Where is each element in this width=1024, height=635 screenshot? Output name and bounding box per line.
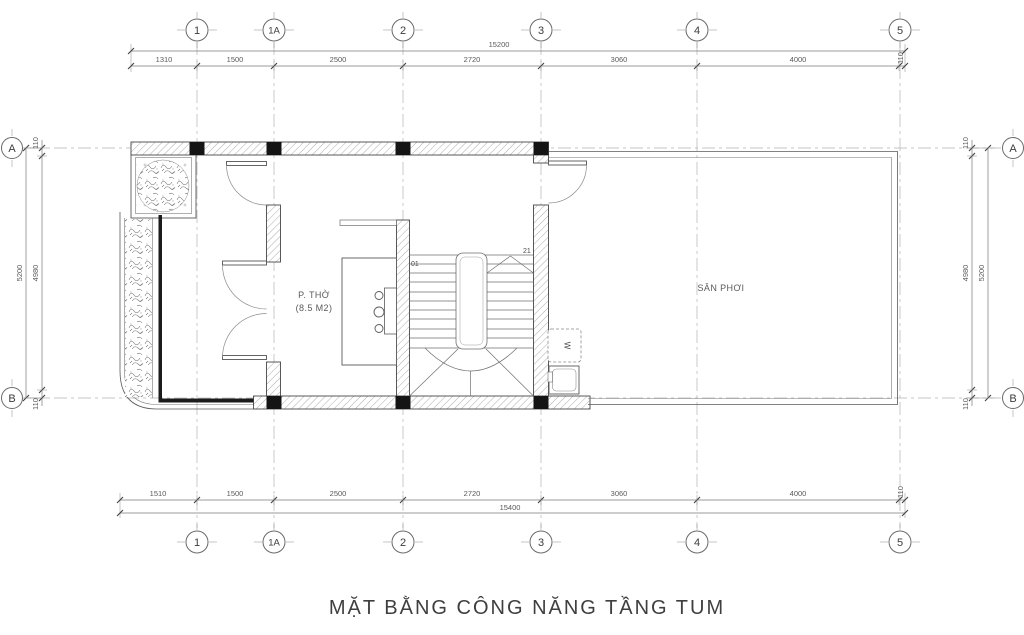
railing (159, 215, 254, 403)
grid-bubble-b-left: B (8, 393, 15, 405)
dimension-bottom: 1510 1500 2500 2720 3060 4000 110 15400 (117, 486, 908, 518)
drawing-title: MẶT BẰNG CÔNG NĂNG TẦNG TUM (329, 595, 725, 619)
dimension-top: 15200 1310 1500 2500 2720 3060 4000 110 (128, 40, 908, 72)
dim-bottom-seg-1: 1500 (227, 489, 244, 498)
dim-bottom-seg-0: 1510 (150, 489, 167, 498)
grid-bubble-1-bottom: 1 (194, 537, 200, 549)
dim-right-110-bottom: 110 (961, 398, 970, 410)
grid-bubbles-right: A B (994, 129, 1024, 417)
dim-bottom-seg-5: 4000 (790, 489, 807, 498)
grid-bubble-4-top: 4 (694, 25, 700, 37)
grid-bubble-b-right: B (1009, 393, 1016, 405)
door-drying-yard (549, 161, 587, 203)
door-double-1a (223, 261, 267, 360)
dimension-right: 4980 5200 110 110 (961, 137, 993, 410)
altar (340, 220, 397, 365)
dim-top-seg-2: 2500 (330, 55, 347, 64)
dim-right-inner: 4980 (961, 265, 970, 282)
dim-left-inner: 4980 (31, 265, 40, 282)
laundry-sink (548, 366, 579, 394)
tree-symbol (137, 160, 189, 212)
planter-strip (120, 212, 254, 409)
washing-machine: W (548, 329, 581, 362)
floor-plan-canvas: 15200 1310 1500 2500 2720 3060 4000 110 … (0, 0, 1024, 635)
dim-right-outer: 5200 (977, 265, 986, 282)
dim-right-110-top: 110 (961, 137, 970, 149)
dimension-left: 5200 4980 110 110 (15, 137, 47, 410)
grid-bubble-a-right: A (1009, 143, 1017, 155)
grid-bubble-3-bottom: 3 (538, 537, 544, 549)
dim-top-seg-6: 110 (896, 52, 905, 64)
grid-lines (30, 42, 995, 528)
grid-bubbles-top: 1 1A 2 3 4 5 (177, 12, 920, 48)
dim-top-total: 15200 (489, 40, 510, 49)
grid-bubble-5-top: 5 (897, 25, 903, 37)
grid-bubble-5-bottom: 5 (897, 537, 903, 549)
grid-bubble-4-bottom: 4 (694, 537, 700, 549)
staircase: 01 21 (410, 248, 534, 396)
grid-bubble-2-bottom: 2 (400, 537, 406, 549)
worship-room-area: (8.5 M2) (296, 303, 333, 313)
dim-bottom-seg-4: 3060 (611, 489, 628, 498)
grid-bubble-2-top: 2 (400, 25, 406, 37)
stair-well (456, 253, 487, 349)
door-single-1a (227, 162, 267, 206)
dim-top-seg-4: 3060 (611, 55, 628, 64)
dim-top-seg-0: 1310 (156, 55, 173, 64)
drying-yard-parapet (549, 152, 898, 405)
dim-top-seg-1: 1500 (227, 55, 244, 64)
grid-bubble-1a-bottom: 1A (268, 538, 280, 549)
grid-bubble-1-top: 1 (194, 25, 200, 37)
grid-bubble-a-left: A (8, 143, 16, 155)
dim-bottom-seg-3: 2720 (464, 489, 481, 498)
worship-room-label: P. THỜ (298, 290, 330, 300)
dim-bottom-total: 15400 (500, 503, 521, 512)
washer-symbol: W (563, 342, 572, 350)
grid-bubbles-bottom: 1 1A 2 3 4 5 (177, 524, 920, 553)
dim-bottom-seg-2: 2500 (330, 489, 347, 498)
drying-yard-label: SÂN PHƠI (698, 283, 745, 293)
planter-box (131, 153, 196, 218)
stair-number-end: 21 (523, 248, 531, 255)
dim-bottom-seg-6: 110 (896, 486, 905, 498)
dim-top-seg-3: 2720 (464, 55, 481, 64)
dim-top-seg-5: 4000 (790, 55, 807, 64)
dim-left-110-bottom: 110 (31, 398, 40, 410)
grid-bubble-3-top: 3 (538, 25, 544, 37)
dim-left-outer: 5200 (15, 265, 24, 282)
stair-number-start: 01 (411, 261, 419, 268)
dim-left-110-top: 110 (31, 137, 40, 149)
grid-bubble-1a-top: 1A (268, 26, 280, 37)
